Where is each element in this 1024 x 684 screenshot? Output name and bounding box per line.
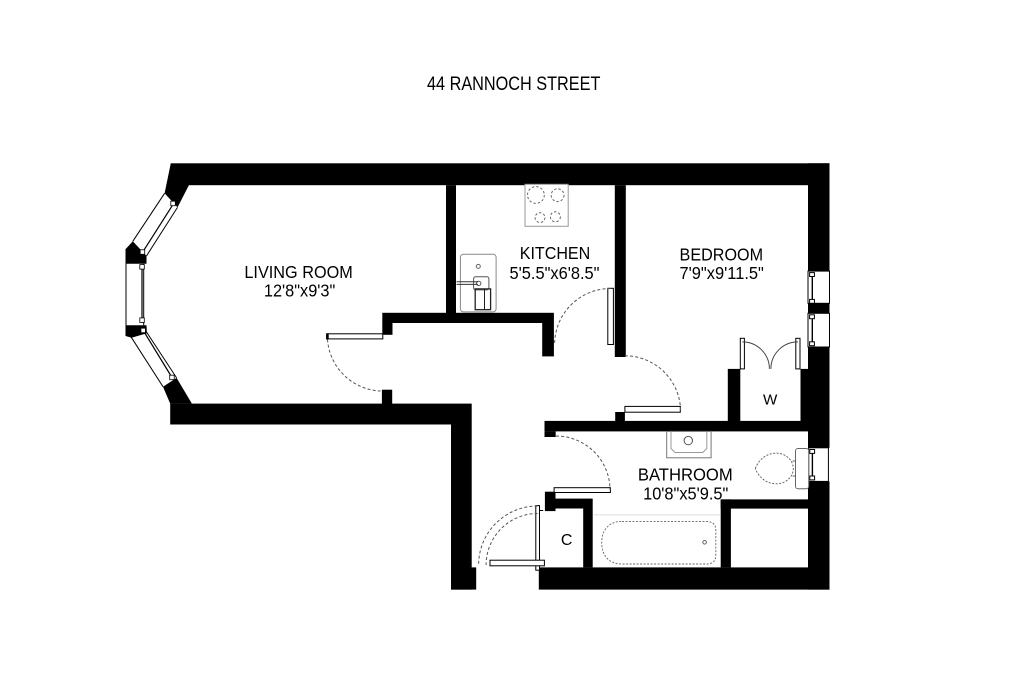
svg-text:W: W xyxy=(763,391,778,408)
svg-text:10'8"x5'9.5": 10'8"x5'9.5" xyxy=(643,484,728,504)
svg-text:44 RANNOCH STREET: 44 RANNOCH STREET xyxy=(427,74,601,95)
svg-text:BATHROOM: BATHROOM xyxy=(638,464,733,484)
svg-text:KITCHEN: KITCHEN xyxy=(520,243,591,263)
svg-text:BEDROOM: BEDROOM xyxy=(680,244,764,264)
svg-text:LIVING ROOM: LIVING ROOM xyxy=(244,262,352,282)
svg-text:7'9"x9'11.5": 7'9"x9'11.5" xyxy=(680,263,764,283)
svg-text:12'8"x9'3": 12'8"x9'3" xyxy=(264,281,335,301)
svg-text:5'5.5"x6'8.5": 5'5.5"x6'8.5" xyxy=(510,263,600,283)
svg-text:C: C xyxy=(561,532,573,549)
